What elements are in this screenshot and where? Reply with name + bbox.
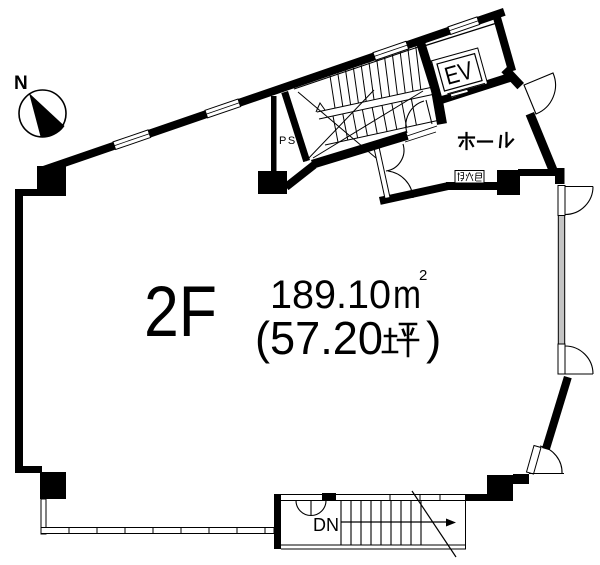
svg-text:m: m [393, 273, 421, 317]
svg-text:189.10: 189.10 [270, 273, 391, 317]
svg-text:2: 2 [419, 267, 427, 284]
svg-text:DN: DN [313, 515, 339, 535]
svg-text:PS: PS [279, 135, 297, 147]
svg-text:(57.20: (57.20 [255, 312, 383, 364]
svg-text:): ) [426, 312, 441, 364]
svg-text:2F: 2F [144, 273, 217, 352]
svg-text:N: N [14, 73, 28, 94]
